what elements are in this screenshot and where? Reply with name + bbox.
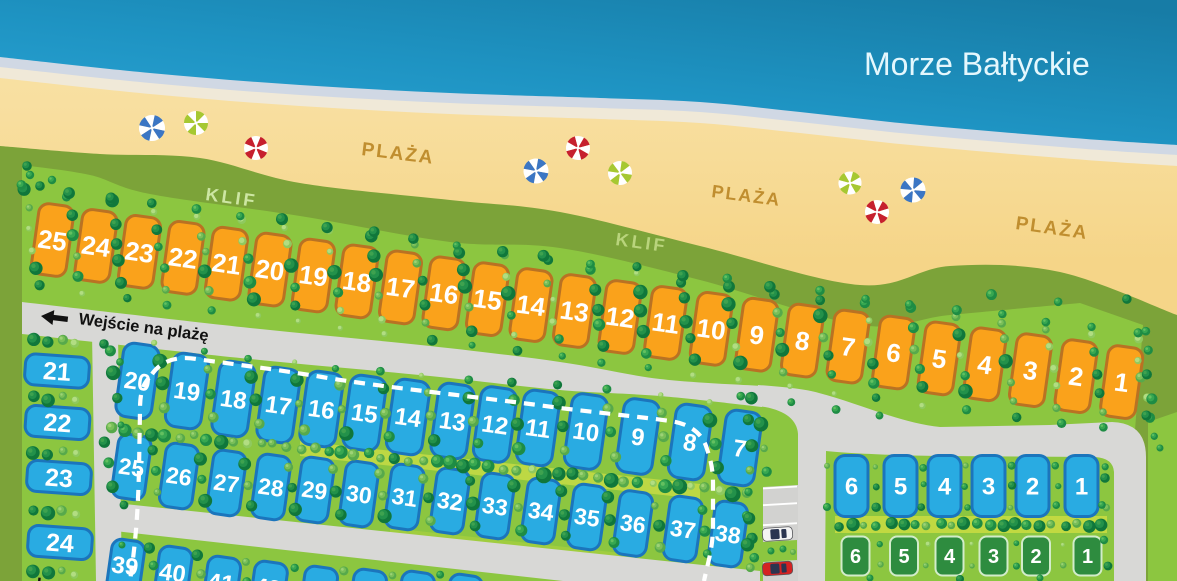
svg-text:17: 17 — [384, 271, 417, 305]
svg-text:22: 22 — [43, 409, 73, 439]
svg-text:Morze Bałtyckie: Morze Bałtyckie — [864, 46, 1090, 82]
svg-text:21: 21 — [42, 357, 72, 387]
svg-text:11: 11 — [523, 414, 552, 444]
svg-text:3: 3 — [988, 546, 999, 568]
svg-text:19: 19 — [297, 259, 330, 293]
svg-text:25: 25 — [36, 224, 69, 258]
svg-text:2: 2 — [1026, 474, 1039, 501]
svg-text:20: 20 — [254, 253, 287, 287]
svg-text:6: 6 — [850, 546, 861, 568]
svg-text:28: 28 — [256, 473, 285, 502]
svg-text:4: 4 — [938, 474, 952, 501]
svg-text:29: 29 — [300, 476, 329, 505]
svg-text:34: 34 — [526, 497, 555, 526]
svg-text:19: 19 — [172, 377, 202, 407]
svg-text:13: 13 — [558, 295, 591, 329]
svg-text:14: 14 — [515, 289, 548, 323]
svg-text:1: 1 — [1082, 546, 1093, 568]
svg-text:22: 22 — [167, 241, 200, 275]
svg-text:10: 10 — [695, 312, 728, 346]
svg-text:4: 4 — [944, 546, 956, 568]
svg-text:18: 18 — [218, 385, 248, 415]
svg-text:17: 17 — [263, 391, 293, 421]
svg-text:16: 16 — [428, 277, 461, 311]
svg-text:14: 14 — [393, 403, 424, 434]
svg-text:26: 26 — [164, 462, 193, 491]
svg-text:21: 21 — [210, 247, 243, 281]
svg-text:31: 31 — [390, 483, 419, 512]
svg-text:35: 35 — [572, 503, 601, 532]
svg-text:23: 23 — [44, 464, 74, 494]
svg-text:15: 15 — [471, 283, 504, 317]
svg-text:33: 33 — [480, 492, 509, 521]
svg-text:6: 6 — [845, 474, 858, 501]
svg-text:40: 40 — [157, 558, 187, 581]
svg-text:11: 11 — [650, 306, 681, 340]
svg-text:5: 5 — [898, 546, 909, 568]
svg-text:1: 1 — [1075, 474, 1088, 501]
svg-text:15: 15 — [349, 399, 379, 429]
svg-text:23: 23 — [123, 235, 156, 269]
svg-text:5: 5 — [894, 474, 907, 501]
svg-text:12: 12 — [480, 410, 510, 440]
svg-text:24: 24 — [45, 529, 75, 559]
svg-text:25: 25 — [117, 453, 146, 482]
svg-text:38: 38 — [713, 520, 742, 549]
svg-text:3: 3 — [982, 474, 995, 501]
svg-text:2: 2 — [1030, 546, 1041, 568]
svg-text:24: 24 — [80, 229, 113, 263]
svg-text:10: 10 — [571, 417, 601, 447]
svg-text:18: 18 — [341, 265, 374, 299]
svg-text:30: 30 — [344, 480, 373, 509]
svg-text:16: 16 — [306, 395, 336, 425]
svg-text:39: 39 — [110, 551, 140, 581]
svg-text:36: 36 — [618, 509, 647, 538]
svg-text:13: 13 — [437, 407, 467, 437]
svg-text:37: 37 — [668, 515, 697, 544]
svg-text:27: 27 — [212, 469, 241, 498]
svg-text:12: 12 — [604, 300, 637, 334]
svg-text:32: 32 — [435, 487, 464, 516]
